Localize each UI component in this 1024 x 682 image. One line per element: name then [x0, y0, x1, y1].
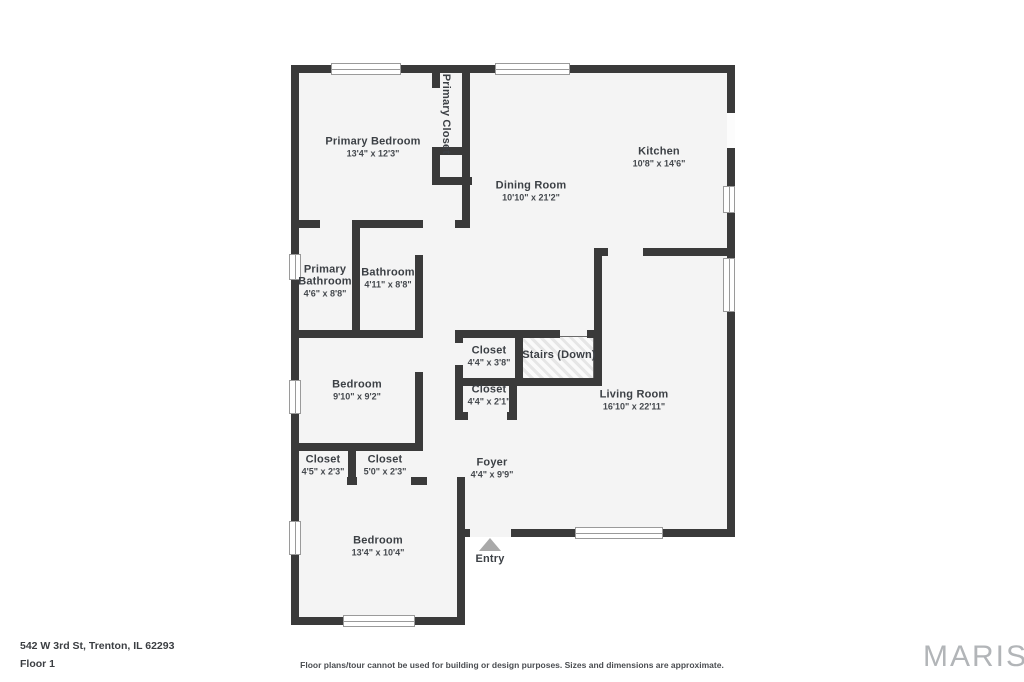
room-label-primary-bathroom: Primary Bathroom 4'6" x 8'8" — [289, 264, 361, 299]
room-label-entry: Entry — [475, 553, 504, 565]
room-name: Dining Room — [496, 180, 567, 192]
room-label-closet-right: Closet 5'0" x 2'3" — [364, 454, 407, 477]
wall-segment — [432, 73, 440, 88]
wall-segment — [643, 248, 735, 256]
window-marker — [723, 258, 735, 312]
wall-segment — [663, 529, 735, 537]
room-dims: 5'0" x 2'3" — [364, 467, 407, 477]
room-label-bedroom-bottom: Bedroom 13'4" x 10'4" — [352, 535, 405, 558]
room-dims: 4'11" x 8'8" — [361, 280, 415, 290]
wall-segment — [455, 412, 468, 420]
entry-arrow-icon — [479, 538, 501, 551]
room-label-closet-left: Closet 4'5" x 2'3" — [302, 454, 345, 477]
floor-plan-page: { "page": { "address": "542 W 3rd St, Tr… — [0, 0, 1024, 682]
room-name: Primary Closet — [440, 74, 452, 154]
wall-segment — [517, 378, 602, 386]
room-dims: 4'4" x 9'9" — [471, 470, 514, 480]
wall-segment — [463, 330, 560, 338]
wall-segment — [411, 477, 427, 485]
room-dims: 13'4" x 10'4" — [352, 548, 405, 558]
room-dims: 4'4" x 3'8" — [468, 358, 511, 368]
wall-segment — [291, 443, 423, 451]
window-marker — [495, 63, 570, 75]
room-name: Kitchen — [633, 146, 686, 158]
room-name: Closet — [302, 454, 345, 466]
room-name: Entry — [475, 553, 504, 565]
window-marker — [331, 63, 401, 75]
wall-segment — [352, 220, 423, 228]
window-marker — [289, 521, 301, 555]
wall-segment — [594, 248, 602, 386]
room-label-stairs-down: Stairs (Down) — [522, 349, 596, 361]
room-name: Living Room — [600, 389, 669, 401]
room-name: Primary Bathroom — [289, 264, 361, 288]
room-label-foyer: Foyer 4'4" x 9'9" — [471, 457, 514, 480]
room-dims: 4'5" x 2'3" — [302, 467, 345, 477]
floor-plan-canvas: Primary Bedroom 13'4" x 12'3" Primary Cl… — [291, 65, 735, 625]
wall-segment — [291, 617, 343, 625]
window-marker — [723, 186, 735, 213]
wall-segment — [507, 412, 517, 420]
wall-segment — [455, 330, 463, 343]
room-name: Foyer — [471, 457, 514, 469]
wall-segment — [457, 477, 465, 625]
room-name: Bedroom — [332, 379, 382, 391]
room-label-dining-room: Dining Room 10'10" x 21'2" — [496, 180, 567, 203]
room-name: Bathroom — [361, 267, 415, 279]
room-label-bathroom: Bathroom 4'11" x 8'8" — [361, 267, 415, 290]
room-name: Primary Bedroom — [325, 136, 420, 148]
room-label-primary-bedroom: Primary Bedroom 13'4" x 12'3" — [325, 136, 420, 159]
disclaimer-text: Floor plans/tour cannot be used for buil… — [0, 660, 1024, 670]
window-marker — [343, 615, 415, 627]
wall-segment — [511, 529, 575, 537]
room-dims: 9'10" x 9'2" — [332, 392, 382, 402]
door-opening — [727, 113, 735, 148]
room-name: Closet — [468, 384, 511, 396]
room-dims: 10'10" x 21'2" — [496, 193, 567, 203]
property-address: 542 W 3rd St, Trenton, IL 62293 — [20, 640, 174, 652]
wall-segment — [462, 65, 470, 228]
room-label-closet-hall-2: Closet 4'4" x 2'1" — [468, 384, 511, 407]
room-label-living-room: Living Room 16'10" x 22'11" — [600, 389, 669, 412]
wall-segment — [415, 255, 423, 330]
room-name: Closet — [468, 345, 511, 357]
room-label-primary-closet: Primary Closet — [440, 74, 452, 154]
wall-segment — [347, 477, 357, 485]
window-marker — [575, 527, 663, 539]
wall-segment — [291, 220, 320, 228]
room-dims: 4'4" x 2'1" — [468, 397, 511, 407]
room-label-kitchen: Kitchen 10'8" x 14'6" — [633, 146, 686, 169]
room-dims: 13'4" x 12'3" — [325, 149, 420, 159]
wall-segment — [455, 220, 470, 228]
room-label-closet-hall: Closet 4'4" x 3'8" — [468, 345, 511, 368]
room-name: Closet — [364, 454, 407, 466]
wall-segment — [455, 365, 463, 378]
room-dims: 10'8" x 14'6" — [633, 159, 686, 169]
room-dims: 16'10" x 22'11" — [600, 402, 669, 412]
room-dims: 4'6" x 8'8" — [289, 289, 361, 299]
room-name: Bedroom — [352, 535, 405, 547]
wall-segment — [291, 330, 423, 338]
wall-segment — [594, 248, 608, 256]
wall-segment — [415, 372, 423, 451]
maris-logo: MARIS — [923, 640, 1024, 674]
room-name: Stairs (Down) — [522, 349, 596, 361]
wall-segment — [415, 617, 465, 625]
room-label-bedroom-middle: Bedroom 9'10" x 9'2" — [332, 379, 382, 402]
window-marker — [289, 380, 301, 414]
